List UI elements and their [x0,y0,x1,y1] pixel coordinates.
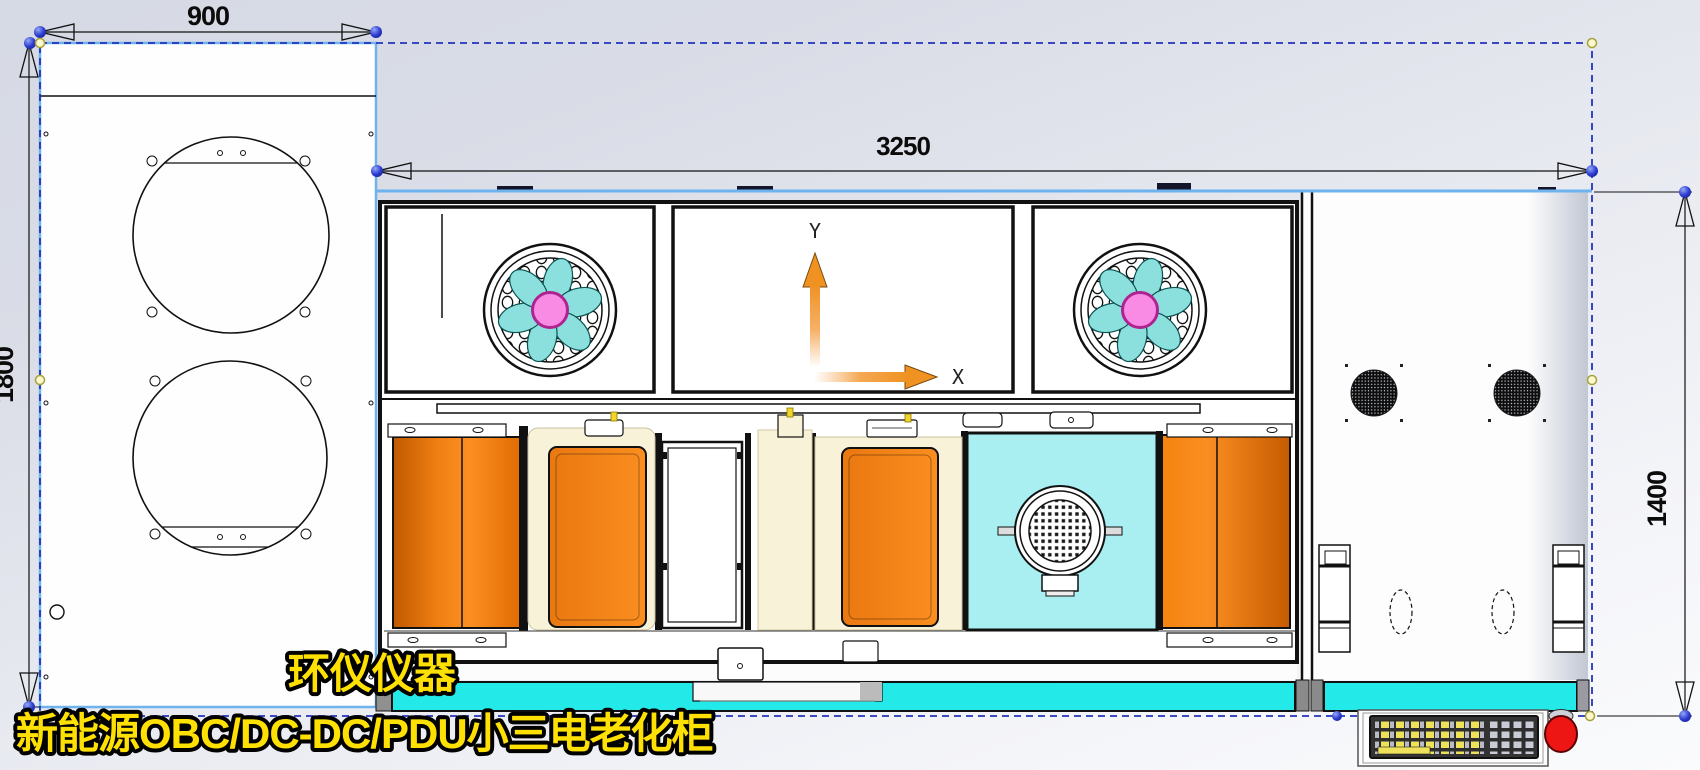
front-view[interactable]: Y X [376,183,1592,711]
yellow-pin [787,408,793,417]
keyboard[interactable] [1358,710,1548,766]
dimension-3250[interactable]: 3250 [376,131,1592,191]
cad-viewport: Y X [0,0,1700,770]
door-panel-c[interactable] [662,442,742,628]
hinge-right [1553,545,1584,652]
dimension-1400[interactable]: 1400 [1594,192,1694,716]
cream-strip[interactable] [758,408,812,630]
dim-text-900: 900 [187,1,229,31]
door-panel-a[interactable] [388,424,520,647]
dimension-1800[interactable]: 1800 [0,43,40,707]
yellow-pin [905,414,911,422]
mouse[interactable] [1545,710,1577,753]
x-axis-label: X [952,365,964,389]
base-strip[interactable] [376,680,1589,711]
cyan-panel[interactable] [963,412,1157,630]
hinge-left [1319,545,1350,652]
base-drawer[interactable] [693,682,882,701]
door-panel-g[interactable] [1162,424,1292,647]
watermark-line1: 环仪仪器 [288,650,457,697]
yellow-pin [611,412,617,421]
fan-left[interactable] [484,244,616,376]
watermark-line2: 新能源OBC/DC-DC/PDU小三电老化柜 [16,710,713,757]
dimension-900[interactable]: 900 [40,1,376,40]
door-panel-b[interactable] [528,412,655,630]
y-axis-label: Y [809,219,821,243]
dim-text-1400: 1400 [1642,471,1672,527]
kick-band [378,664,1297,680]
side-view[interactable] [40,43,376,707]
dim-text-3250: 3250 [876,131,930,161]
fan-right[interactable] [1074,244,1206,376]
door-panel-e[interactable] [815,414,962,630]
dim-text-1800: 1800 [0,347,19,403]
